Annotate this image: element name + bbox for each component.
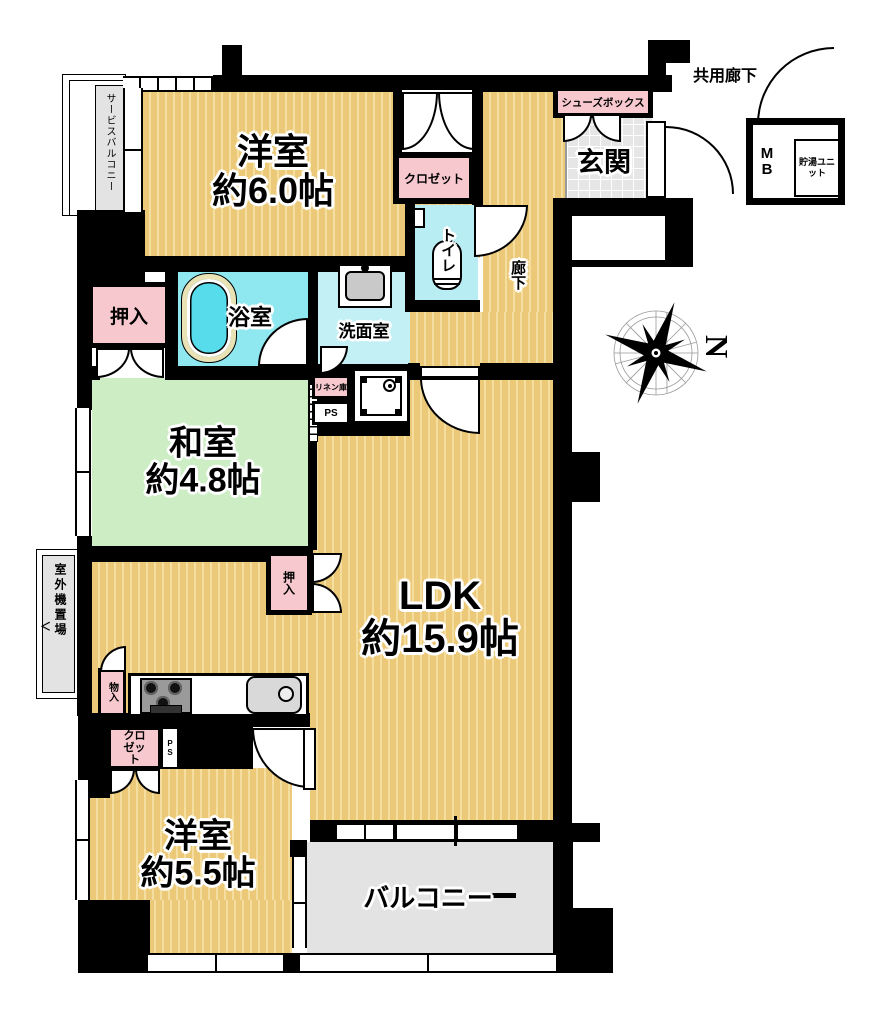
wall xyxy=(553,198,693,216)
entrance-door-leaf xyxy=(646,121,666,198)
ps-south: PS xyxy=(161,727,179,769)
storage-box: 物入 xyxy=(98,668,126,716)
wall xyxy=(553,823,573,973)
hot-water-unit: 貯湯ユニット xyxy=(794,139,840,197)
toilet-seat-line xyxy=(434,278,460,280)
wall xyxy=(393,88,402,152)
window xyxy=(397,823,517,841)
oshiire-ldk: 押入 xyxy=(266,551,312,615)
wall xyxy=(573,823,600,842)
wall xyxy=(405,300,480,312)
mb-box: MB 貯湯ユニット xyxy=(746,118,845,205)
bath-label: 浴室 xyxy=(228,306,272,330)
closet-south: クロゼット xyxy=(108,727,161,769)
wall xyxy=(665,216,693,266)
outdoor-unit-label: 室外機置場 xyxy=(52,563,69,687)
wall xyxy=(77,536,92,716)
balcony-label: バルコニー xyxy=(363,884,492,912)
ps-north: PS xyxy=(312,401,350,425)
washer-corner xyxy=(395,376,402,383)
window-mullion xyxy=(454,816,457,846)
compass-north-label: N xyxy=(698,335,735,358)
balcony-railing xyxy=(300,953,556,973)
genkan-label: 玄関 xyxy=(577,148,631,177)
wall xyxy=(165,366,315,380)
wall xyxy=(572,452,600,502)
oshiire-ldk-label: 押入 xyxy=(281,571,298,595)
floor-plan: シューズボックス クロゼット 押入 リネン庫 PS 押入 物入 クロゼット PS… xyxy=(0,0,881,1024)
ldk-door-leaf xyxy=(420,366,480,378)
wall xyxy=(179,727,253,769)
closet-north-label: クロゼット xyxy=(404,170,464,187)
wall xyxy=(77,210,145,290)
washer-corner xyxy=(360,409,367,416)
washroom-sink-basin xyxy=(345,271,385,301)
wall xyxy=(290,840,307,857)
wall xyxy=(308,256,318,376)
storage-label: 物入 xyxy=(105,682,120,702)
washroom-faucet-icon xyxy=(361,264,369,272)
entrance-door-arc xyxy=(666,126,734,194)
stove-burner-icon xyxy=(144,681,158,695)
room-yoshitsu55-floor xyxy=(148,900,292,957)
toilet-label: トイレ xyxy=(439,228,455,273)
room-washitsu-label: 和室 約4.8帖 xyxy=(145,425,260,498)
washer-corner xyxy=(360,376,367,383)
outdoor-unit-arrow: ＜ xyxy=(40,618,51,634)
bath-faucet-icon xyxy=(207,262,214,269)
stove-burner-icon xyxy=(168,681,182,695)
window xyxy=(75,780,90,900)
wall xyxy=(572,260,693,267)
oshiire-north-label: 押入 xyxy=(110,302,148,329)
door-arc xyxy=(96,348,130,378)
balcony-partition-mark xyxy=(490,893,516,898)
wall xyxy=(222,45,242,77)
wall xyxy=(648,63,666,79)
mb-label: MB xyxy=(759,146,775,178)
window xyxy=(148,953,283,973)
door-leaf xyxy=(303,728,316,790)
room-ldk-label: LDK 約15.9帖 xyxy=(361,575,519,661)
washer-corner xyxy=(395,409,402,416)
shoes-box-label: シューズボックス xyxy=(561,95,644,110)
stove-grill xyxy=(150,705,182,714)
door-arc xyxy=(130,348,164,378)
linen-box: リネン庫 xyxy=(312,375,350,399)
wall xyxy=(78,900,150,973)
service-balcony-label: サービスバルコニー xyxy=(102,93,117,205)
washroom-label: 洗面室 xyxy=(339,323,390,341)
room-yoshitsu55-label: 洋室 約5.5帖 xyxy=(140,818,255,891)
common-corridor-door-arc xyxy=(757,47,834,124)
wall xyxy=(573,908,613,973)
window xyxy=(123,88,143,212)
toilet-seat-line xyxy=(434,283,460,285)
window xyxy=(337,823,393,841)
linen-label: リネン庫 xyxy=(315,382,347,393)
kitchen-faucet-icon xyxy=(278,686,294,702)
closet-south-label: クロゼット xyxy=(121,730,147,766)
ps-south-label: PS xyxy=(166,739,175,757)
closet-north: クロゼット xyxy=(393,152,475,204)
ps-north-label: PS xyxy=(324,408,337,419)
window xyxy=(292,857,307,948)
common-corridor-label: 共用廊下 xyxy=(693,62,757,86)
oshiire-north: 押入 xyxy=(88,282,170,348)
wall xyxy=(553,200,572,823)
window xyxy=(75,408,91,536)
wall xyxy=(648,40,690,63)
hallway-label: 廊下 xyxy=(509,260,525,290)
washer-faucet-dot xyxy=(388,384,392,388)
room-yoshitsu6-label: 洋室 約6.0帖 xyxy=(212,133,334,211)
hot-water-unit-label: 貯湯ユニット xyxy=(799,157,835,179)
toilet-window xyxy=(413,208,425,228)
